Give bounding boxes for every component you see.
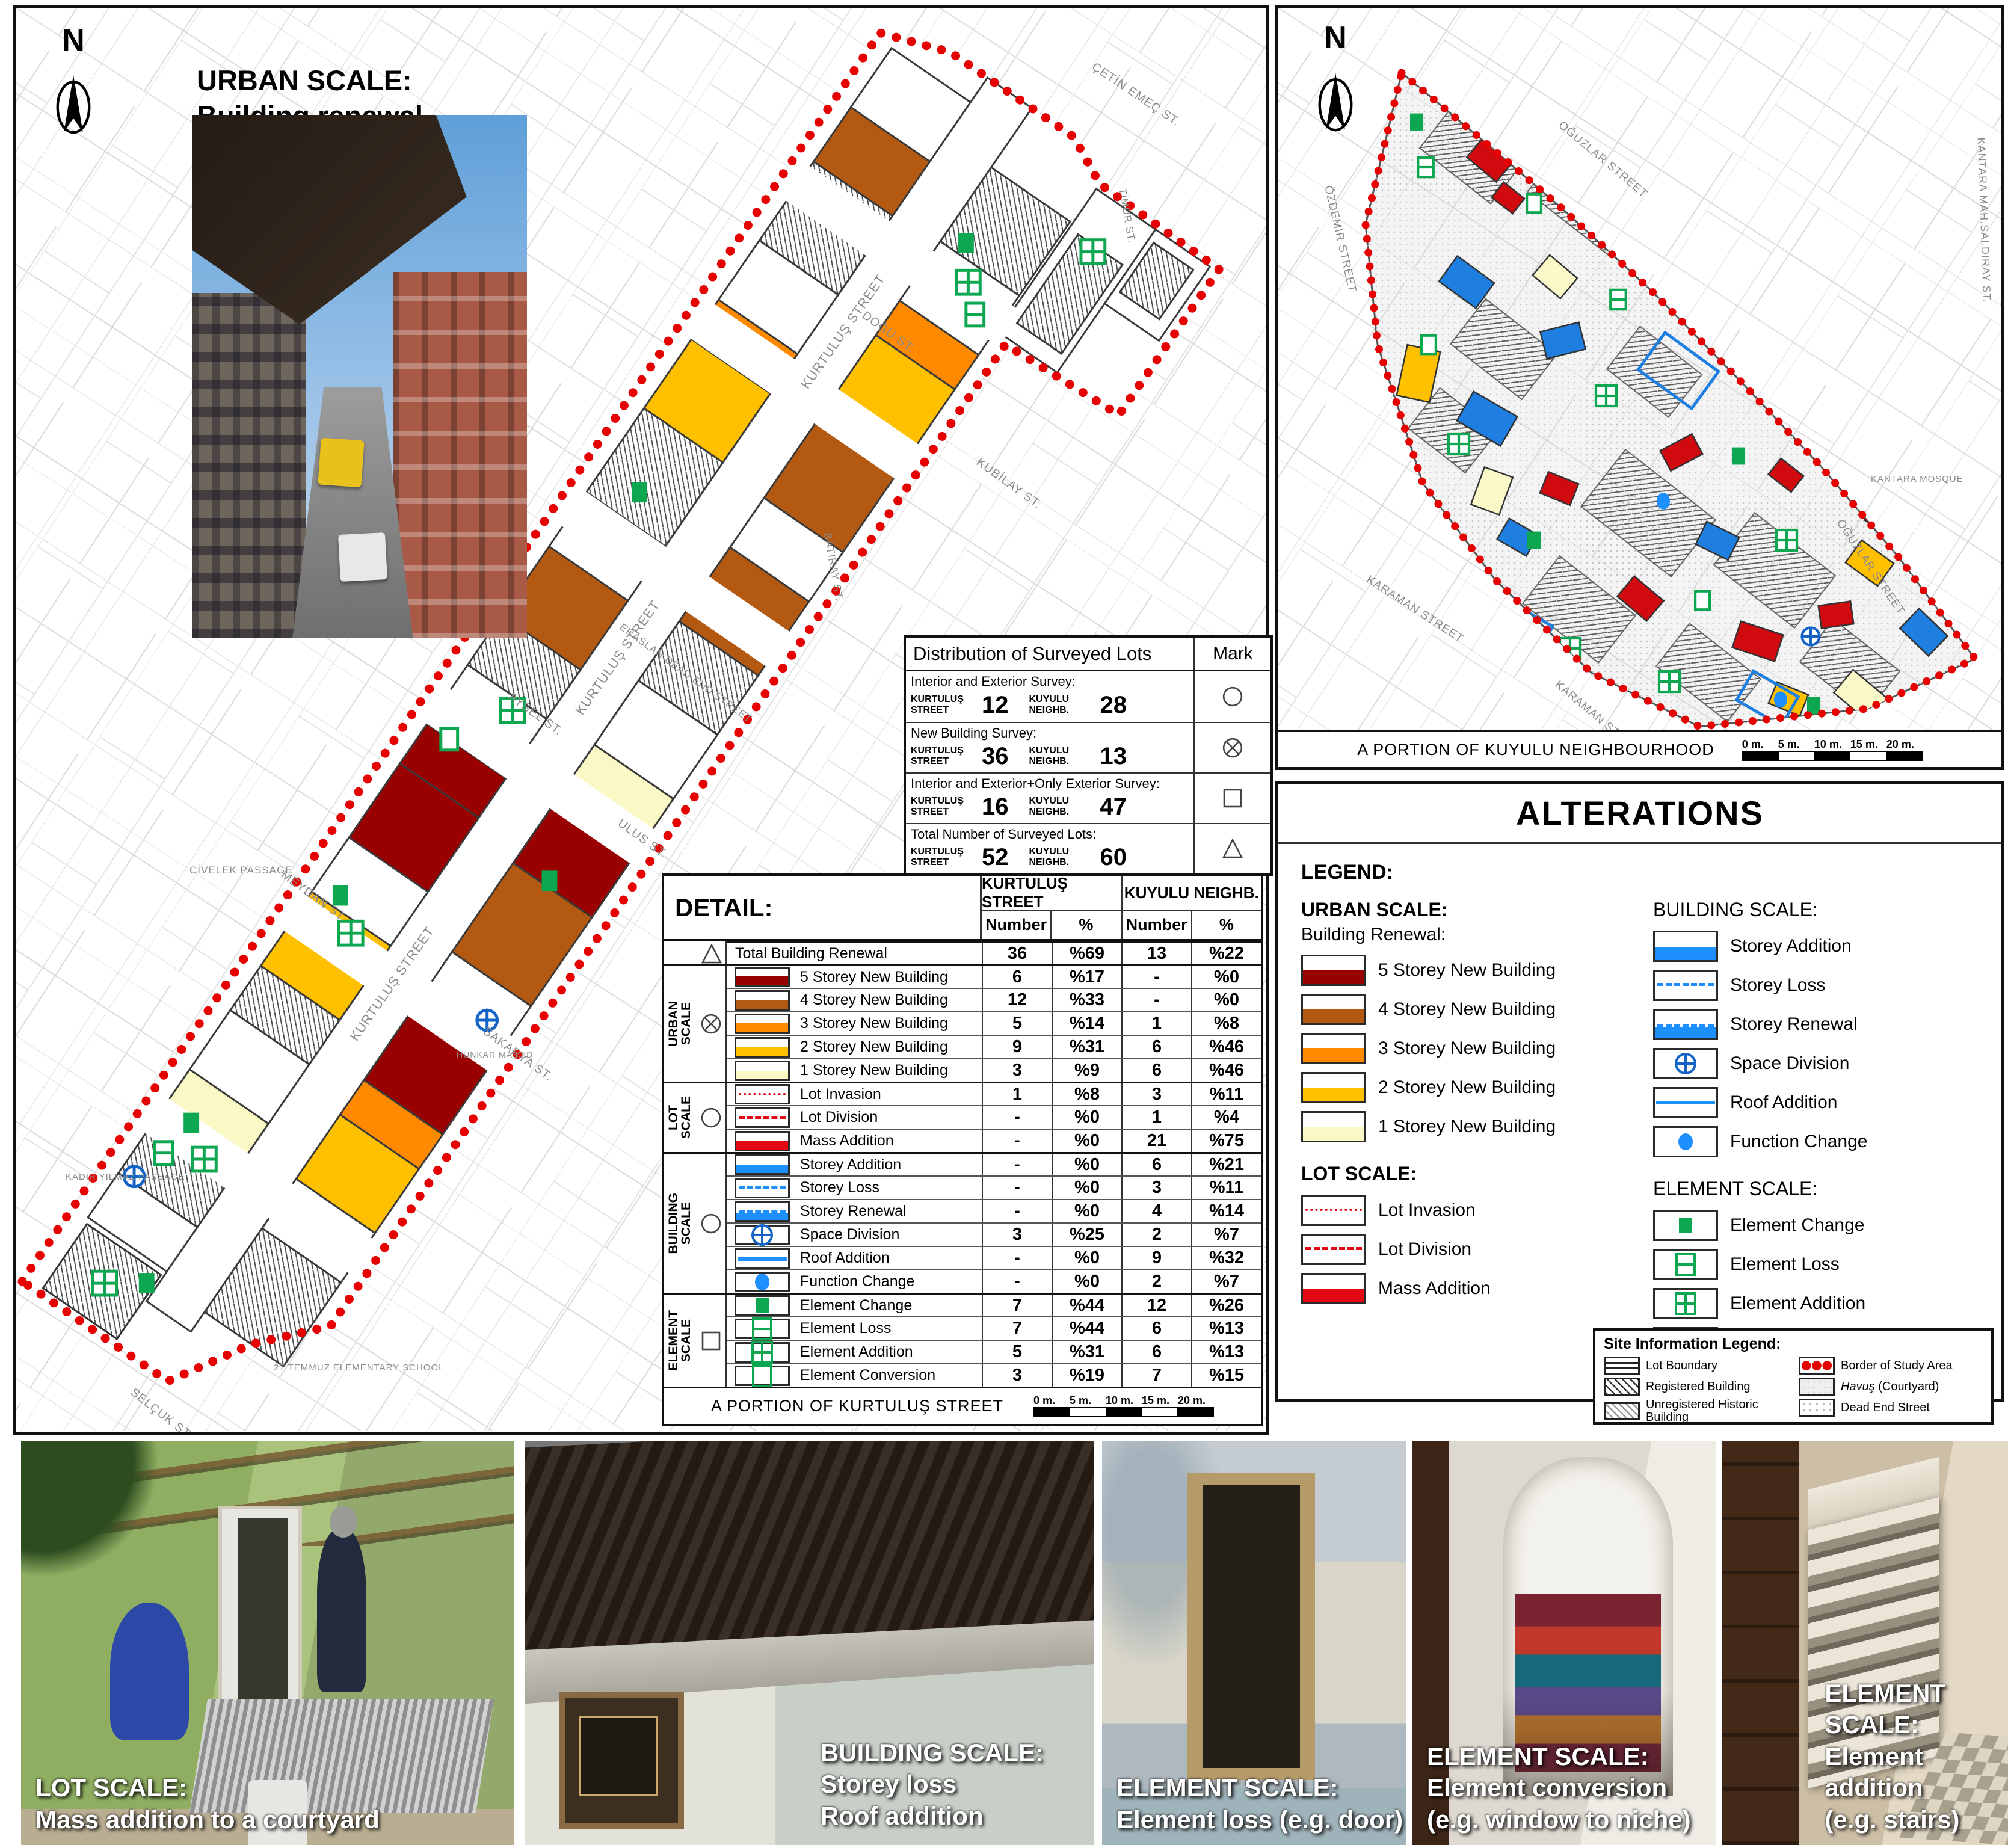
photo-building-right	[393, 272, 527, 638]
detail-table-header: DETAIL: KURTULUŞ STREET Number % KUYULU …	[664, 876, 1261, 941]
legend-swatch	[1301, 994, 1366, 1025]
photo-caption: ELEMENT SCALE:Element loss (e.g. door)	[1116, 1772, 1403, 1835]
alteration-label: Element Loss	[798, 1317, 982, 1340]
legend-swatch	[1301, 1234, 1366, 1265]
survey-table-title: Distribution of Surveyed Lots	[906, 643, 1193, 665]
alteration-label: 4 Storey New Building	[798, 989, 982, 1011]
kurtulus-number: 7	[982, 1317, 1052, 1340]
photo-element-addition: ELEMENT SCALE:Element addition(e.g. stai…	[1722, 1441, 2008, 1845]
photo-building-scale: BUILDING SCALE:Storey lossRoof addition	[525, 1441, 1094, 1845]
urban-scale-heading: URBAN SCALE:	[1301, 899, 1627, 921]
legend-item-label: Roof Addition	[1730, 1092, 1837, 1113]
kurtulus-map-caption: A PORTION OF KURTULUŞ STREET 0 m.5 m.10 …	[664, 1387, 1261, 1424]
north-arrow-left: N	[40, 25, 106, 141]
photo-caption: LOT SCALE:Mass addition to a courtyard	[35, 1772, 380, 1835]
legend-item: Mass Addition	[1301, 1273, 1627, 1304]
kurtulus-count: 36	[982, 743, 1009, 770]
total-row-mark-icon	[699, 941, 724, 967]
detail-row: 5 Storey New Building 6 %17 - %0	[727, 964, 1261, 988]
lot-scale-heading: LOT SCALE:	[1301, 1163, 1627, 1185]
kurtulus-number: -	[982, 1106, 1052, 1129]
street-label: KANTARA MOSQUE	[1871, 474, 1963, 484]
row-swatch	[735, 1131, 790, 1151]
scale-bar: 0 m.5 m.10 m.15 m.20 m.	[1033, 1395, 1214, 1417]
legend-swatch	[1301, 1195, 1366, 1226]
legend-swatch	[1653, 1210, 1718, 1241]
legend-item: 5 Storey New Building	[1301, 955, 1627, 986]
alteration-label: Element Addition	[798, 1341, 982, 1363]
detail-row: Lot Division - %0 1 %4	[727, 1105, 1261, 1129]
alteration-label: Roof Addition	[798, 1247, 982, 1269]
detail-row: 3 Storey New Building 5 %14 1 %8	[727, 1011, 1261, 1035]
alteration-label: Element Change	[798, 1295, 982, 1316]
kurtulus-number: -	[982, 1270, 1052, 1293]
row-swatch	[735, 1366, 790, 1386]
urban-scale-rail: URBANSCALE	[664, 964, 727, 1082]
alteration-label: Lot Division	[798, 1106, 982, 1129]
kuyulu-percent: %11	[1191, 1083, 1261, 1105]
street-label: SELÇUK STREET	[128, 1385, 220, 1435]
kurtulus-number: 9	[982, 1036, 1052, 1058]
detail-row: Storey Renewal - %0 4 %14	[727, 1199, 1261, 1222]
legend-item-label: Space Division	[1730, 1053, 1849, 1074]
site-legend-swatch	[1799, 1399, 1835, 1417]
survey-row-label: Interior and Exterior Survey:	[911, 674, 1189, 689]
kurtulus-number: -	[982, 1130, 1052, 1152]
site-legend-swatch	[1604, 1357, 1640, 1375]
scale-bar-blocks	[1033, 1407, 1214, 1417]
legend-label: LEGEND:	[1301, 861, 1979, 884]
row-swatch	[735, 1201, 790, 1222]
kuyulu-percent: %7	[1191, 1224, 1261, 1246]
detail-row: Element Change 7 %44 12 %26	[727, 1293, 1261, 1316]
scale-bar: 0 m.5 m.10 m.15 m.20 m.	[1742, 739, 1923, 761]
scale-tick: 5 m.	[1778, 739, 1814, 750]
street-label: BATIRAY ST.	[821, 532, 846, 603]
kurtulus-percent: %0	[1052, 1270, 1121, 1293]
site-legend-swatch	[1604, 1402, 1640, 1420]
legend-swatch	[1301, 955, 1366, 986]
detail-row: Element Conversion 3 %19 7 %15	[727, 1363, 1261, 1387]
kuyulu-number: 1	[1121, 1012, 1191, 1035]
street-label: ÖZDEMIR STREET	[1321, 185, 1358, 294]
site-legend-swatch	[1799, 1357, 1835, 1375]
kuyulu-count: 60	[1100, 844, 1127, 871]
title-line-1: URBAN SCALE:	[197, 63, 423, 99]
kurtulus-percent: %0	[1052, 1154, 1121, 1175]
kurtulus-number: 3	[982, 1059, 1052, 1082]
kurtulus-number: -	[982, 1177, 1052, 1199]
street-label: KUBİLAY ST.	[973, 455, 1044, 512]
kurtulus-count: 52	[982, 844, 1009, 871]
scale-tick: 20 m.	[1886, 739, 1923, 750]
legend-item: Storey Renewal	[1653, 1009, 1979, 1040]
legend-item: Storey Addition	[1653, 931, 1979, 962]
kuyulu-name: KUYULU NEIGHB.	[1029, 694, 1100, 715]
kuyulu-percent: %15	[1191, 1364, 1261, 1387]
site-legend-title: Site Information Legend:	[1604, 1335, 1983, 1353]
kurtulus-name: KURTULUŞ STREET	[911, 745, 982, 766]
lot-scale-rail: LOTSCALE	[664, 1082, 727, 1152]
legend-item-label: Element Loss	[1730, 1254, 1840, 1275]
kuyulu-percent: %46	[1191, 1059, 1261, 1082]
kurtulus-percent: %0	[1052, 1247, 1121, 1269]
kuyulu-name: KUYULU NEIGHB.	[1029, 846, 1100, 867]
kuyulu-number: 2	[1121, 1224, 1191, 1246]
detail-row: Element Loss 7 %44 6 %13	[727, 1316, 1261, 1340]
legend-swatch	[1653, 1087, 1718, 1118]
kuyulu-count: 47	[1100, 793, 1127, 821]
kuyulu-number: 3	[1121, 1083, 1191, 1105]
kurtulus-percent: %19	[1052, 1364, 1121, 1387]
scale-tick: 15 m.	[1850, 739, 1886, 750]
legend-swatch	[1653, 970, 1718, 1001]
kurtulus-percent: %33	[1052, 989, 1121, 1011]
kurtulus-number: -	[982, 1200, 1052, 1222]
kuyulu-percent: %4	[1191, 1106, 1261, 1129]
alteration-label: Storey Renewal	[798, 1200, 982, 1222]
street-label: TİMUR ST.	[1116, 187, 1138, 244]
number-subheader: Number	[982, 911, 1050, 939]
kuyulu-number: -	[1121, 966, 1191, 988]
legend-item: Element Loss	[1653, 1249, 1979, 1280]
survey-table-header: Distribution of Surveyed Lots Mark	[906, 638, 1270, 671]
kurtulus-count: 12	[982, 692, 1009, 719]
survey-table-rows: Interior and Exterior Survey: KURTULUŞ S…	[906, 671, 1270, 873]
mark-column-header: Mark	[1193, 638, 1270, 670]
legend-item: 4 Storey New Building	[1301, 994, 1627, 1025]
survey-row-label: Total Number of Surveyed Lots:	[911, 827, 1189, 842]
legend-swatch	[1653, 1048, 1718, 1079]
detail-row: 1 Storey New Building 3 %9 6 %46	[727, 1058, 1261, 1082]
legend-item-label: 4 Storey New Building	[1378, 999, 1556, 1020]
legend-item: Element Change	[1653, 1210, 1979, 1241]
detail-row: Space Division 3 %25 2 %7	[727, 1222, 1261, 1246]
element-mark-icon	[698, 1328, 724, 1354]
photo-caption: ELEMENT SCALE:Element conversion(e.g. wi…	[1427, 1741, 1691, 1836]
alteration-label: Space Division	[798, 1224, 982, 1246]
kurtulus-number: 6	[982, 966, 1052, 988]
kurtulus-number: 36	[982, 943, 1052, 964]
compass-icon	[46, 57, 101, 141]
kurtulus-percent: %44	[1052, 1295, 1121, 1316]
kuyulu-number: 6	[1121, 1341, 1191, 1363]
legend-item: Storey Loss	[1653, 970, 1979, 1001]
row-swatch	[735, 1225, 790, 1245]
alteration-label: 2 Storey New Building	[798, 1036, 982, 1058]
number-subheader: Number	[1123, 911, 1191, 939]
legend-item-label: Lot Division	[1378, 1239, 1471, 1260]
kuyulu-number: 6	[1121, 1154, 1191, 1175]
element-scale-heading: ELEMENT SCALE:	[1653, 1178, 1979, 1200]
kuyulu-number: 3	[1121, 1177, 1191, 1199]
site-legend-item: Border of Study Area	[1799, 1357, 1983, 1375]
photo-caption: ELEMENT SCALE:Element addition(e.g. stai…	[1825, 1678, 2008, 1836]
alterations-panel: ALTERATIONS LEGEND: URBAN SCALE: Buildin…	[1275, 781, 2004, 1402]
legend-item: Lot Division	[1301, 1234, 1627, 1265]
kurtulus-percent: %8	[1052, 1083, 1121, 1105]
scale-tick: 5 m.	[1070, 1395, 1106, 1406]
kurtulus-number: 1	[982, 1083, 1052, 1105]
kuyulu-percent: %26	[1191, 1295, 1261, 1316]
site-legend-item: Registered Building	[1604, 1378, 1788, 1396]
site-legend-item: Havuş (Courtyard)	[1799, 1378, 1983, 1396]
detail-row: Roof Addition - %0 9 %32	[727, 1246, 1261, 1269]
kurtulus-percent: %25	[1052, 1224, 1121, 1246]
kuyulu-percent: %7	[1191, 1270, 1261, 1293]
kurtulus-percent: %44	[1052, 1317, 1121, 1340]
detail-row: Storey Loss - %0 3 %11	[727, 1175, 1261, 1199]
street-label: MEYDAN ST.	[278, 868, 350, 925]
detail-row: Lot Invasion 1 %8 3 %11	[727, 1082, 1261, 1105]
scale-bar-blocks	[1742, 751, 1923, 761]
kurtulus-percent: %0	[1052, 1200, 1121, 1222]
kuyulu-count: 28	[1100, 692, 1127, 719]
row-swatch	[735, 1061, 790, 1081]
kurtulus-percent: %17	[1052, 966, 1121, 988]
kuyulu-number: -	[1121, 989, 1191, 1011]
kurtulus-name: KURTULUŞ STREET	[911, 796, 982, 817]
alteration-label: Lot Invasion	[798, 1083, 982, 1105]
scale-tick: 10 m.	[1106, 1395, 1142, 1406]
alteration-label: Storey Addition	[798, 1154, 982, 1175]
kurtulus-number: 5	[982, 1341, 1052, 1363]
north-letter: N	[40, 25, 106, 56]
legend-item: Function Change	[1653, 1126, 1979, 1157]
scale-tick: 20 m.	[1178, 1395, 1214, 1406]
legend-swatch	[1301, 1111, 1366, 1142]
kuyulu-number: 21	[1121, 1130, 1191, 1152]
survey-mark-icon	[1220, 786, 1245, 811]
detail-row: Element Addition 5 %31 6 %13	[727, 1340, 1261, 1363]
kurtulus-percent: %0	[1052, 1130, 1121, 1152]
kuyulu-percent: %11	[1191, 1177, 1261, 1199]
kurtulus-name: KURTULUŞ STREET	[911, 694, 982, 715]
legend-item-label: Lot Invasion	[1378, 1200, 1476, 1221]
photo-element-conversion: ELEMENT SCALE:Element conversion(e.g. wi…	[1412, 1441, 1716, 1845]
kurtulus-col-header: KURTULUŞ STREET	[982, 876, 1121, 911]
building-scale-heading: BUILDING SCALE:	[1653, 899, 1979, 921]
urban-mark-icon	[698, 1011, 724, 1036]
building-scale-rail: BUILDINGSCALE	[664, 1152, 727, 1293]
survey-row: Total Number of Surveyed Lots: KURTULUŞ …	[906, 823, 1270, 873]
lot-scale-legend: Lot Invasion Lot Division Mass Addition	[1301, 1195, 1627, 1304]
site-legend-item: Unregistered Historic Building	[1604, 1399, 1788, 1424]
legend-item-label: Mass Addition	[1378, 1278, 1491, 1299]
row-swatch	[735, 1178, 790, 1198]
kurtulus-number: 5	[982, 1012, 1052, 1035]
kurtulus-count: 16	[982, 793, 1009, 821]
row-swatch	[735, 1084, 790, 1104]
legend-item-label: Storey Renewal	[1730, 1014, 1858, 1035]
kuyulu-name: KUYULU NEIGHB.	[1029, 745, 1100, 766]
street-label: 27 TEMMUZ ELEMENTARY SCHOOL	[274, 1363, 444, 1373]
street-label: KANTARA MAH.SALDIRAY ST.	[1975, 137, 1994, 303]
legend-item: Element Addition	[1653, 1288, 1979, 1319]
site-legend-item: Lot Boundary	[1604, 1357, 1788, 1375]
legend-item: Roof Addition	[1653, 1087, 1979, 1118]
row-swatch	[735, 1272, 790, 1292]
urban-scale-legend: 5 Storey New Building 4 Storey New Build…	[1301, 955, 1627, 1142]
percent-subheader: %	[1191, 911, 1261, 939]
alteration-label: 5 Storey New Building	[798, 966, 982, 988]
kurtulus-percent: %14	[1052, 1012, 1121, 1035]
kurtulus-percent: %9	[1052, 1059, 1121, 1082]
legend-swatch	[1653, 1249, 1718, 1280]
kuyulu-map-caption: A PORTION OF KUYULU NEIGHBOURHOOD 0 m.5 …	[1278, 730, 2001, 767]
kuyulu-number: 9	[1121, 1247, 1191, 1269]
street-label: KARAMAN STREET	[1364, 573, 1466, 646]
alteration-label: 1 Storey New Building	[798, 1059, 982, 1082]
legend-item-label: Storey Loss	[1730, 975, 1825, 996]
street-label: OĞUZLAR STREET	[1834, 517, 1907, 618]
detail-row: Storey Addition - %0 6 %21	[727, 1152, 1261, 1175]
legend-item: 2 Storey New Building	[1301, 1072, 1627, 1103]
row-swatch	[735, 967, 790, 987]
survey-mark-icon	[1220, 836, 1245, 861]
survey-mark-icon	[1220, 735, 1245, 760]
photo-building-left	[192, 293, 306, 638]
street-label: AYSEL ST.	[505, 690, 565, 739]
detail-row: Total Building Renewal 36 %69 13 %22	[727, 941, 1261, 964]
detail-table-rows: Total Building Renewal 36 %69 13 %22 5 S…	[727, 941, 1261, 1387]
photo-caption: BUILDING SCALE:Storey lossRoof addition	[821, 1737, 1044, 1832]
row-swatch	[735, 990, 790, 1011]
legend-item: Space Division	[1653, 1048, 1979, 1079]
street-label: KURTULUŞ STREET	[572, 597, 663, 718]
kuyulu-number: 7	[1121, 1364, 1191, 1387]
building-renewal-subheading: Building Renewal:	[1301, 925, 1627, 945]
legend-item-label: 5 Storey New Building	[1378, 960, 1556, 981]
kurtulus-number: 3	[982, 1364, 1052, 1387]
photo-lot-scale: LOT SCALE:Mass addition to a courtyard	[21, 1441, 514, 1845]
kuyulu-percent: %75	[1191, 1130, 1261, 1152]
survey-row: New Building Survey: KURTULUŞ STREET 36 …	[906, 722, 1270, 772]
site-legend-swatch	[1604, 1378, 1640, 1396]
north-letter: N	[1302, 22, 1369, 54]
row-swatch	[735, 1107, 790, 1128]
survey-row-label: New Building Survey:	[911, 725, 1189, 741]
site-legend-col1: Lot Boundary Registered Building Unregis…	[1604, 1357, 1788, 1427]
building-mark-icon	[698, 1211, 724, 1236]
kuyulu-percent: %32	[1191, 1247, 1261, 1269]
legend-swatch	[1301, 1273, 1366, 1304]
street-label: OĞUZLAR STREET	[1556, 119, 1650, 201]
alteration-label: 3 Storey New Building	[798, 1012, 982, 1035]
kuyulu-percent: %14	[1191, 1200, 1261, 1222]
kuyulu-neighbourhood-map-panel: ÖZDEMIR STREETOĞUZLAR STREETKANTARA MAH.…	[1275, 5, 2004, 770]
legend-swatch	[1653, 1126, 1718, 1157]
legend-item-label: 3 Storey New Building	[1378, 1038, 1556, 1059]
caption-text: A PORTION OF KUYULU NEIGHBOURHOOD	[1357, 741, 1714, 759]
kuyulu-percent: %21	[1191, 1154, 1261, 1175]
kurtulus-number: -	[982, 1247, 1052, 1269]
scale-tick: 10 m.	[1814, 739, 1850, 750]
alteration-label: Storey Loss	[798, 1177, 982, 1199]
kuyulu-percent: %22	[1191, 943, 1261, 964]
detail-table: DETAIL: KURTULUŞ STREET Number % KUYULU …	[662, 873, 1263, 1426]
kuyulu-number: 6	[1121, 1317, 1191, 1340]
site-legend-swatch	[1799, 1378, 1835, 1396]
street-label: CİVELEK PASSAGE	[189, 864, 293, 876]
percent-subheader: %	[1050, 911, 1120, 939]
kurtulus-number: 12	[982, 989, 1052, 1011]
kuyulu-number: 4	[1121, 1200, 1191, 1222]
legend-item-label: Function Change	[1730, 1132, 1868, 1152]
figure-root: ÇETİN EMEÇ ST.TİMUR ST.DOĞU ST.KURTULUŞ …	[0, 0, 2008, 1848]
kurtulus-percent: %31	[1052, 1036, 1121, 1058]
survey-row-label: Interior and Exterior+Only Exterior Surv…	[911, 776, 1189, 792]
legend-item-label: 2 Storey New Building	[1378, 1077, 1556, 1098]
caption-text: A PORTION OF KURTULUŞ STREET	[711, 1397, 1003, 1415]
kuyulu-number: 6	[1121, 1059, 1191, 1082]
kuyulu-col-header: KUYULU NEIGHB.	[1123, 876, 1261, 911]
kuyulu-number: 6	[1121, 1036, 1191, 1058]
kuyulu-percent: %0	[1191, 966, 1261, 988]
alterations-title: ALTERATIONS	[1278, 784, 2001, 844]
kuyulu-count: 13	[1100, 743, 1127, 770]
kurtulus-percent: %69	[1052, 943, 1121, 964]
detail-row: Function Change - %0 2 %7	[727, 1269, 1261, 1293]
legend-swatch	[1301, 1033, 1366, 1064]
street-label: KADİR YILMAZ PASSAGE	[66, 1172, 185, 1182]
kurtulus-percent: %31	[1052, 1341, 1121, 1363]
survey-mark-icon	[1220, 684, 1245, 709]
row-swatch	[735, 1154, 790, 1175]
kuyulu-number: 1	[1121, 1106, 1191, 1129]
street-label: DOĞU ST.	[859, 309, 917, 356]
surveyed-lots-table: Distribution of Surveyed Lots Mark Inter…	[904, 635, 1273, 876]
legend-swatch	[1301, 1072, 1366, 1103]
alteration-label: Mass Addition	[798, 1130, 982, 1152]
row-swatch	[735, 1295, 790, 1316]
survey-row: Interior and Exterior+Only Exterior Surv…	[906, 772, 1270, 823]
detail-row: Mass Addition - %0 21 %75	[727, 1129, 1261, 1152]
kuyulu-street-labels: ÖZDEMIR STREETOĞUZLAR STREETKANTARA MAH.…	[1278, 8, 2001, 767]
survey-row: Interior and Exterior Survey: KURTULUŞ S…	[906, 671, 1270, 722]
alteration-label: Total Building Renewal	[727, 943, 982, 964]
legend-swatch	[1653, 1288, 1718, 1319]
legend-swatch	[1653, 1009, 1718, 1040]
street-photo-inset	[192, 115, 527, 638]
kuyulu-percent: %0	[1191, 989, 1261, 1011]
legend-item-label: Storey Addition	[1730, 936, 1852, 956]
legend-item-label: Element Change	[1730, 1215, 1864, 1236]
scale-tick: 0 m.	[1033, 1395, 1070, 1406]
street-label: ÇETİN EMEÇ ST.	[1089, 60, 1183, 129]
legend-item: Lot Invasion	[1301, 1195, 1627, 1226]
kuyulu-percent: %13	[1191, 1317, 1261, 1340]
alteration-label: Function Change	[798, 1270, 982, 1293]
site-information-legend: Site Information Legend: Lot Boundary Re…	[1593, 1328, 1994, 1424]
kurtulus-percent: %0	[1052, 1177, 1121, 1199]
kuyulu-percent: %8	[1191, 1012, 1261, 1035]
kurtulus-name: KURTULUŞ STREET	[911, 846, 982, 867]
scale-tick: 15 m.	[1142, 1395, 1178, 1406]
detail-row: 2 Storey New Building 9 %31 6 %46	[727, 1035, 1261, 1058]
legend-item-label: Element Addition	[1730, 1293, 1865, 1314]
site-legend-item: Dead End Street	[1799, 1399, 1983, 1417]
legend-item-label: 1 Storey New Building	[1378, 1116, 1556, 1137]
scale-tick: 0 m.	[1742, 739, 1778, 750]
detail-scale-rails: URBANSCALE LOTSCALE BUILDINGSCALE ELEMEN…	[664, 941, 727, 1387]
kuyulu-percent: %46	[1191, 1036, 1261, 1058]
legend-item: 3 Storey New Building	[1301, 1033, 1627, 1064]
row-swatch	[735, 1014, 790, 1034]
lot-mark-icon	[698, 1105, 724, 1130]
building-scale-legend: Storey Addition Storey Loss Storey Renew…	[1653, 931, 1979, 1157]
row-swatch	[735, 1342, 790, 1363]
